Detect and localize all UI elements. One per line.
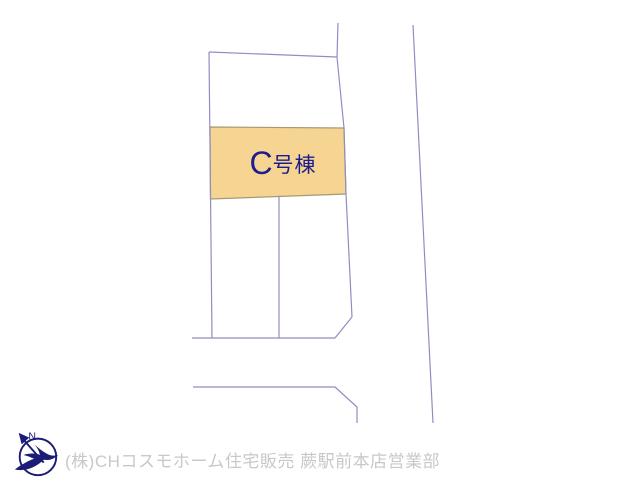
road-south-edge [193, 387, 357, 423]
site-plan-page: C 号棟 N (株)CHコスモホーム住宅販売 蕨駅前本店営業部 [0, 0, 640, 480]
lot-c-parcel [210, 127, 346, 199]
corner-chamfer-line [335, 317, 352, 338]
logo-north-letter: N [28, 431, 36, 443]
compass-bird-logo-icon: N [12, 428, 62, 480]
east-road-line [413, 25, 433, 423]
north-stub-line [337, 23, 338, 57]
upper-lot-top-edge [209, 52, 337, 57]
site-plan-drawing [0, 0, 640, 480]
parcel-boundary-lines [192, 23, 433, 423]
watermark: N (株)CHコスモホーム住宅販売 蕨駅前本店営業部 [12, 428, 440, 480]
watermark-company-text: (株)CHコスモホーム住宅販売 蕨駅前本店営業部 [65, 447, 440, 472]
